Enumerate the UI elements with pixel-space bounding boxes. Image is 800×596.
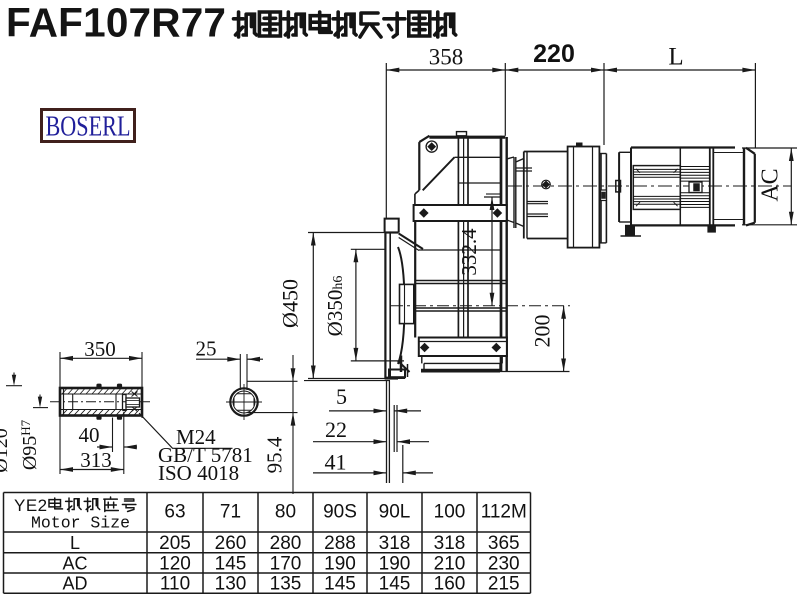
svg-text:288: 288 <box>324 533 356 554</box>
svg-text:5: 5 <box>336 384 347 409</box>
svg-text:L: L <box>668 44 683 71</box>
svg-text:130: 130 <box>215 574 247 595</box>
svg-text:200: 200 <box>530 315 555 348</box>
svg-text:71: 71 <box>220 502 241 523</box>
svg-text:190: 190 <box>379 554 411 575</box>
svg-text:313: 313 <box>80 448 112 472</box>
svg-text:ISO 4018: ISO 4018 <box>158 461 239 485</box>
svg-text:365: 365 <box>488 533 520 554</box>
svg-text:80: 80 <box>275 502 296 523</box>
svg-text:Ø120: Ø120 <box>0 428 12 472</box>
svg-text:90L: 90L <box>379 502 411 523</box>
svg-text:145: 145 <box>215 554 247 575</box>
svg-text:40: 40 <box>79 423 100 447</box>
svg-text:160: 160 <box>434 574 466 595</box>
svg-text:190: 190 <box>324 554 356 575</box>
svg-text:332.4: 332.4 <box>457 228 481 276</box>
svg-text:120: 120 <box>159 554 191 575</box>
svg-text:AC: AC <box>62 554 87 574</box>
svg-text:318: 318 <box>434 533 466 554</box>
svg-text:BOSERL: BOSERL <box>46 112 131 143</box>
svg-text:260: 260 <box>215 533 247 554</box>
svg-text:AC: AC <box>758 168 784 201</box>
svg-text:145: 145 <box>379 574 411 595</box>
svg-text:112M: 112M <box>481 502 527 523</box>
svg-text:280: 280 <box>270 533 302 554</box>
svg-text:90S: 90S <box>323 502 357 523</box>
svg-text:358: 358 <box>429 45 464 70</box>
svg-text:FAF107R77: FAF107R77 <box>6 0 226 46</box>
svg-text:205: 205 <box>159 533 191 554</box>
svg-text:Motor Size: Motor Size <box>31 514 130 533</box>
svg-text:63: 63 <box>164 502 185 523</box>
svg-text:170: 170 <box>270 554 302 575</box>
svg-text:41: 41 <box>325 449 347 474</box>
svg-text:AD: AD <box>62 574 87 594</box>
svg-text:135: 135 <box>270 574 302 595</box>
svg-text:100: 100 <box>434 502 466 523</box>
svg-text:215: 215 <box>488 574 520 595</box>
svg-text:145: 145 <box>324 574 356 595</box>
svg-text:220: 220 <box>533 40 575 68</box>
svg-text:L: L <box>70 533 80 553</box>
svg-text:25: 25 <box>196 337 217 361</box>
svg-text:110: 110 <box>160 574 190 595</box>
svg-text:22: 22 <box>325 417 347 442</box>
svg-text:350: 350 <box>84 337 116 361</box>
svg-text:Ø450: Ø450 <box>278 279 303 328</box>
svg-text:YE2: YE2 <box>14 496 48 515</box>
svg-text:230: 230 <box>488 554 520 575</box>
svg-text:318: 318 <box>379 533 411 554</box>
svg-text:210: 210 <box>434 554 466 575</box>
svg-text:95.4: 95.4 <box>263 436 287 473</box>
